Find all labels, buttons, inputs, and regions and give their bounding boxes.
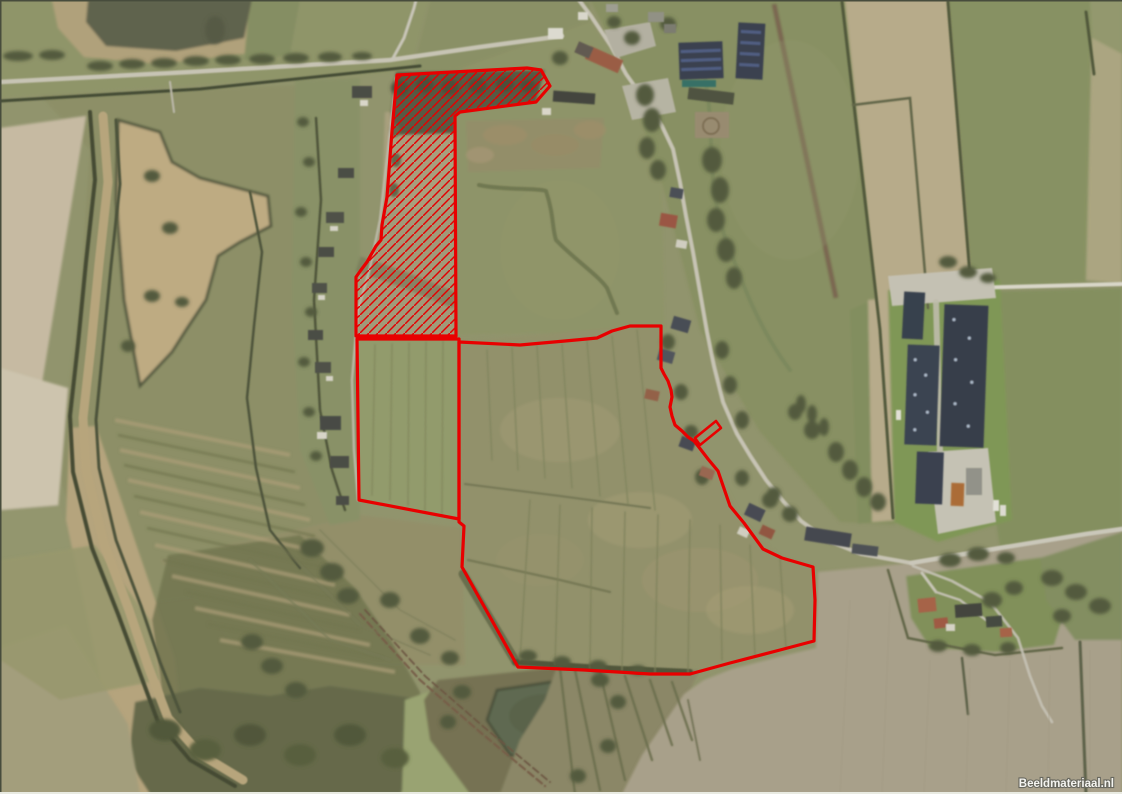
svg-text:Beeldmateriaal.nl: Beeldmateriaal.nl: [1019, 778, 1114, 790]
